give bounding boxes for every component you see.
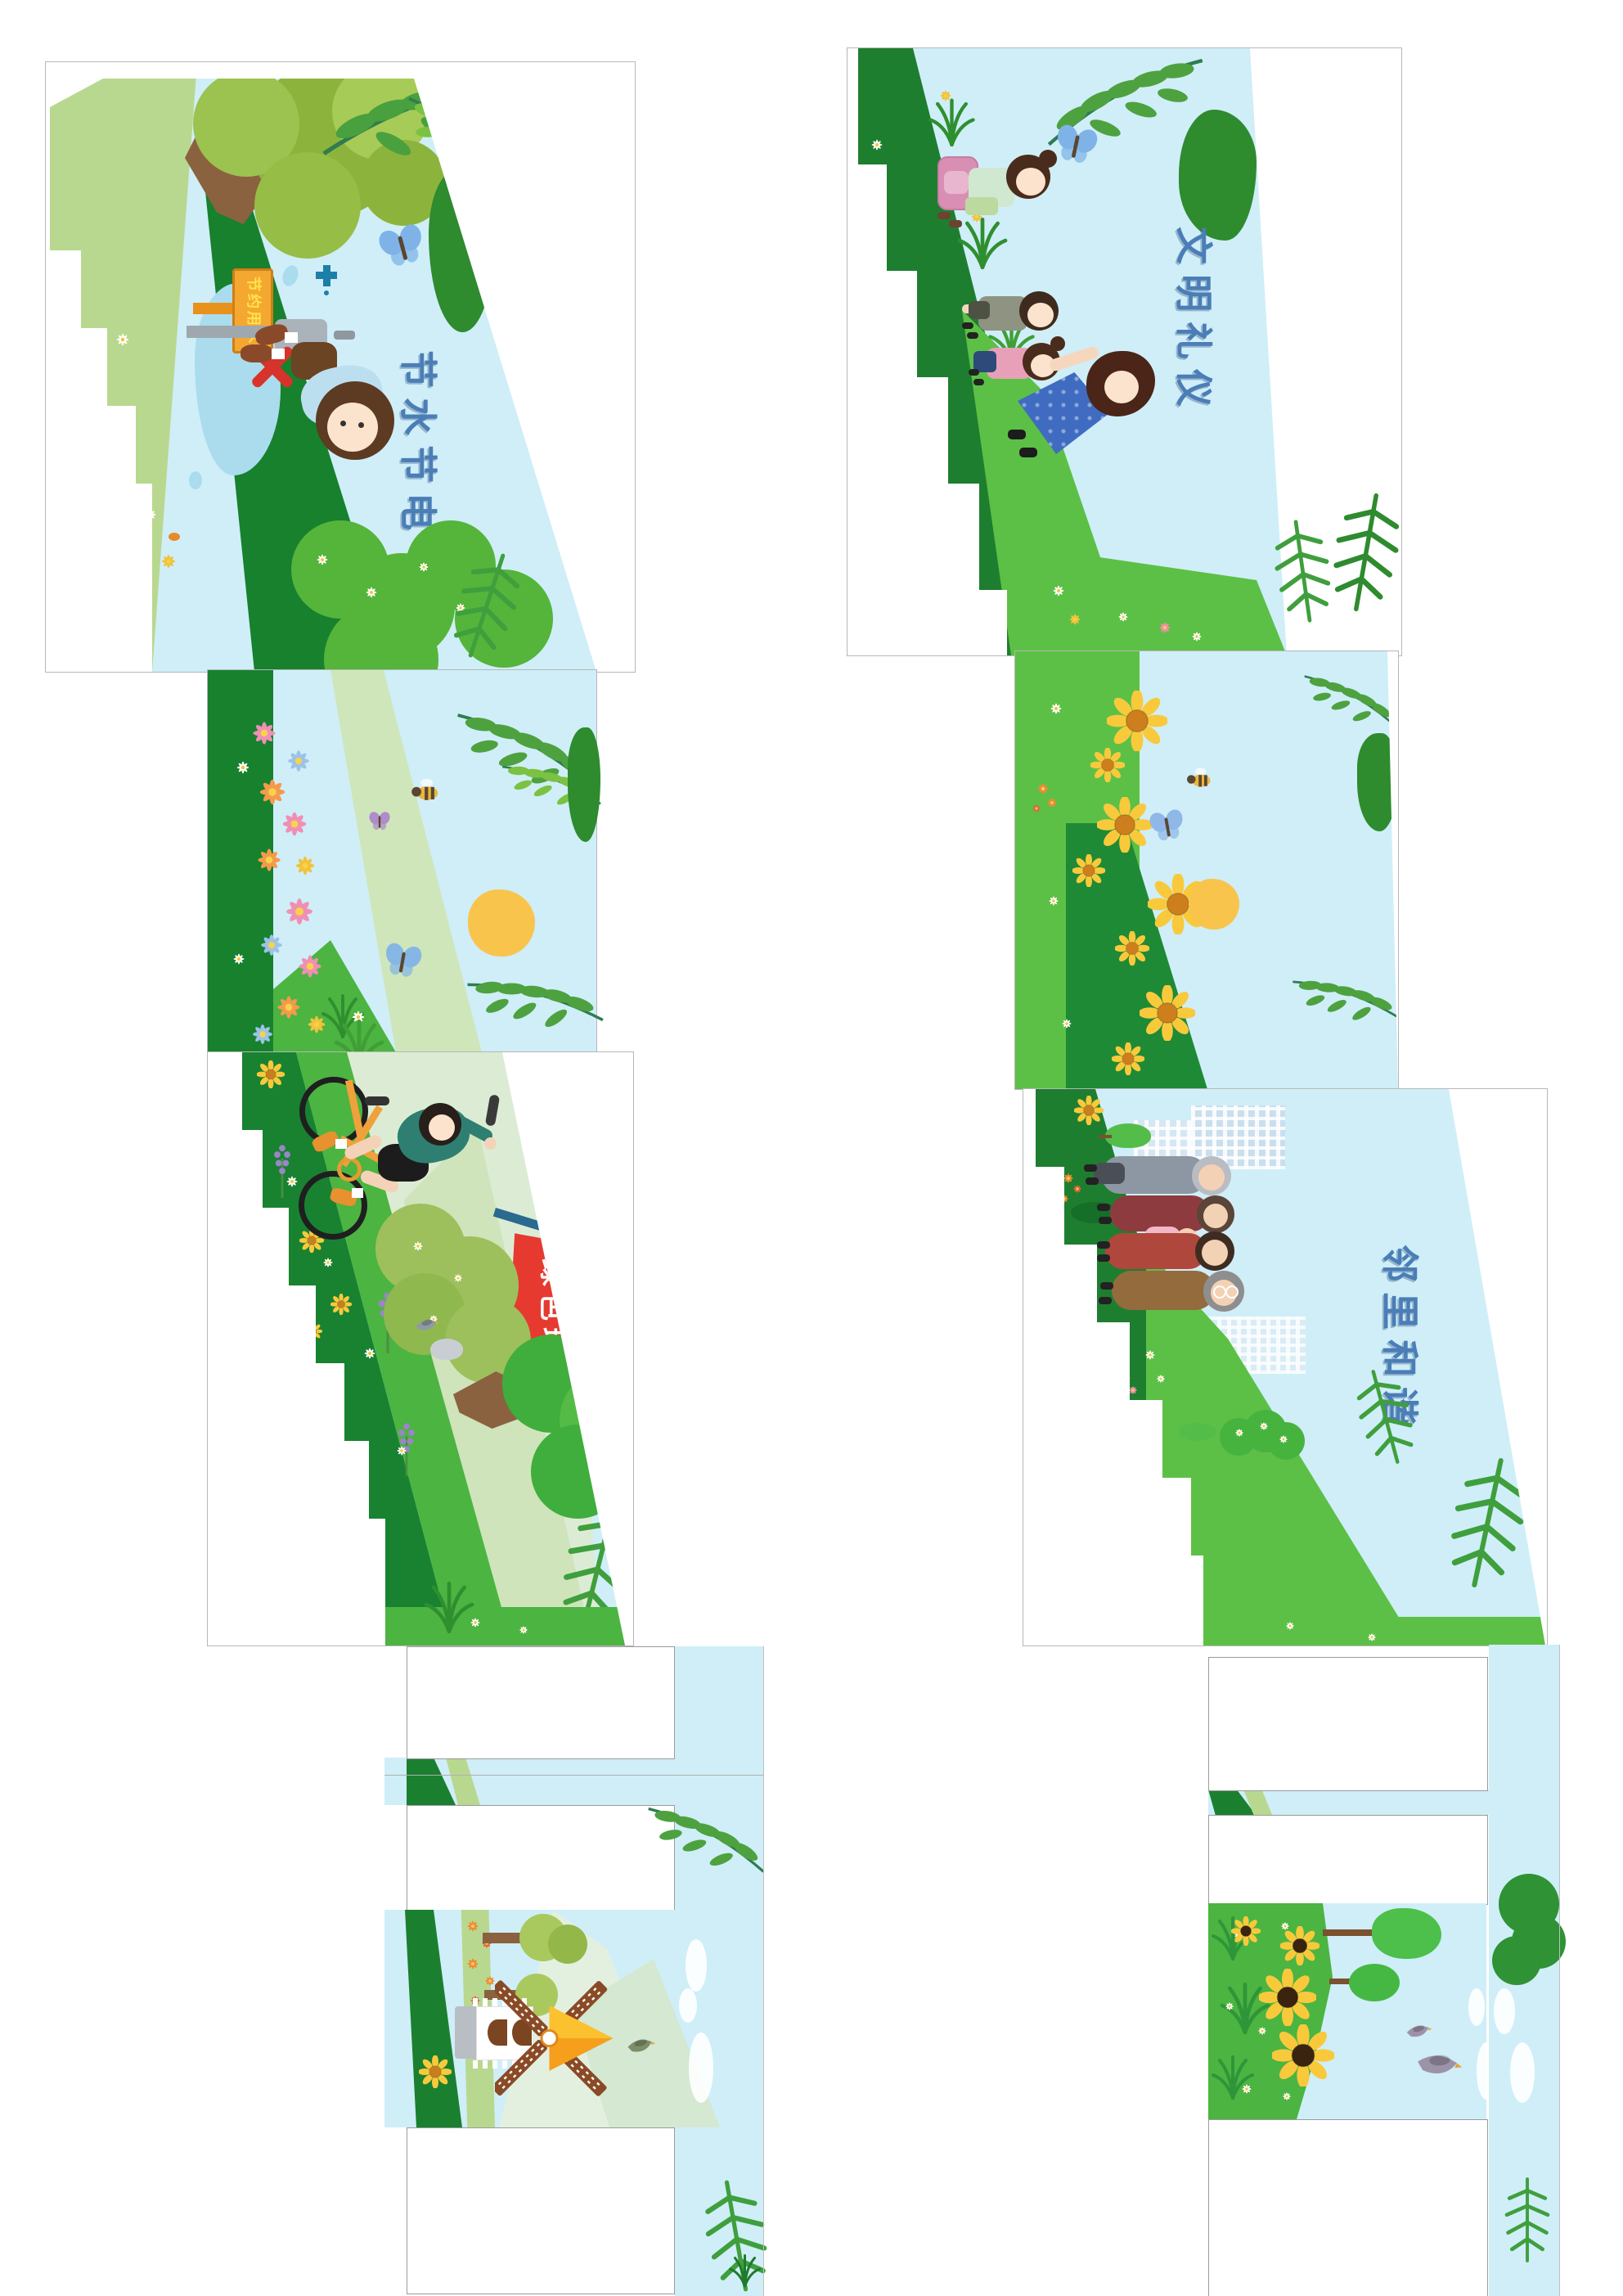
elder-shoe — [1084, 1164, 1097, 1172]
daisy-icon — [1241, 2083, 1252, 2095]
sunflower-icon — [1272, 2024, 1334, 2087]
sunflower-icon — [1107, 691, 1167, 751]
flower-icon — [250, 1022, 275, 1047]
daisy-icon — [365, 586, 378, 599]
flag-pole — [493, 1208, 615, 1253]
flower-icon — [1158, 621, 1171, 634]
girl-shoe — [973, 379, 984, 385]
sunflower-icon — [330, 1294, 352, 1315]
tap-glyph-drop — [324, 290, 329, 295]
girl-hair-bun — [1039, 150, 1057, 168]
bird-icon — [412, 1312, 440, 1335]
sunflower-icon — [1140, 985, 1195, 1041]
flower-icon — [484, 1975, 496, 1987]
tree-canopy — [548, 1925, 587, 1964]
cloud-icon — [679, 1988, 697, 2023]
tap-glyph-stem — [323, 265, 330, 286]
bicycle-crank — [337, 1157, 362, 1182]
sunflower-icon — [1259, 1969, 1316, 2026]
sun-icon — [468, 889, 535, 957]
butterfly-icon — [367, 809, 392, 834]
sunflower-icon — [1112, 1042, 1144, 1075]
sunflower-icon — [1097, 797, 1153, 853]
elder-head — [1192, 1156, 1231, 1195]
daisy-icon — [1285, 1621, 1295, 1631]
daisy-icon — [412, 1240, 424, 1252]
panel-green-env-scene: 绿色环保 — [208, 1052, 633, 1645]
daisy-icon — [1259, 1421, 1269, 1431]
daisy-icon — [363, 1347, 376, 1360]
label-box-6 — [1208, 2119, 1488, 2296]
small-tree-trunk — [1099, 1135, 1112, 1138]
sunflower-icon — [257, 1060, 285, 1088]
cloud-icon — [689, 2033, 713, 2103]
flower-icon — [1120, 1372, 1131, 1384]
daisy-icon — [1144, 1349, 1156, 1361]
daisy-icon — [1117, 611, 1129, 623]
flower-icon — [1036, 782, 1050, 795]
daisy-icon — [232, 952, 245, 966]
girl-shorts — [965, 197, 998, 215]
cloud-icon — [1510, 2042, 1535, 2103]
label-box-4 — [1208, 1657, 1488, 1791]
girl-sandal — [949, 220, 962, 227]
daisy-icon — [418, 561, 429, 573]
daisy-icon — [144, 508, 157, 521]
cloud-icon — [1468, 1988, 1485, 2026]
tree-canopy — [1349, 1964, 1400, 2001]
flower-icon — [275, 993, 303, 1021]
elder-head — [1197, 1195, 1234, 1233]
house-roof — [455, 2006, 476, 2059]
panel-harmony: 邻里和谐 — [1023, 1088, 1548, 1646]
grass-tuft-icon — [726, 2242, 763, 2296]
flower-icon — [160, 553, 177, 569]
boy-shoe — [241, 344, 273, 362]
sunflower-icon — [1280, 1926, 1320, 1965]
sunflower-icon — [419, 2055, 452, 2088]
boy-shoe — [967, 332, 978, 339]
daisy-icon — [1257, 2026, 1267, 2036]
panel-sunflowers-scene — [1015, 651, 1398, 1089]
elder-body — [1112, 1271, 1215, 1310]
label-box-3 — [407, 2127, 675, 2294]
flower-icon — [1072, 1184, 1082, 1194]
mother-shoe — [1008, 430, 1026, 439]
girl-sandal — [937, 212, 951, 219]
cyclist-hand — [484, 1137, 497, 1150]
tree-canopy — [1372, 1908, 1441, 1959]
elder-shoe — [1086, 1177, 1099, 1185]
die-line — [763, 1646, 764, 2296]
backpack-pocket — [944, 171, 969, 194]
cyclist-sock — [352, 1188, 363, 1198]
daisy-icon — [115, 332, 130, 347]
flower-icon — [283, 895, 316, 928]
daisy-icon — [1225, 2001, 1234, 2011]
panel-save-water: 节水节电 节约用水 — [45, 61, 636, 673]
glasses — [1225, 1285, 1239, 1299]
tulip-icon — [124, 596, 147, 646]
elder-head — [1195, 1231, 1234, 1271]
flower-icon — [1068, 613, 1081, 626]
tree-canopy — [502, 1335, 600, 1433]
sunflower-icon — [1072, 854, 1105, 887]
sky-strip — [1489, 1645, 1559, 2296]
panel-green-env: 绿色环保 — [207, 1051, 634, 1646]
daisy-icon — [1156, 1374, 1166, 1384]
daisy-icon — [470, 1617, 481, 1628]
flower-icon — [259, 932, 285, 958]
willow-branch-icon — [535, 1134, 625, 1204]
elder-face — [1203, 1204, 1228, 1228]
glasses — [1213, 1285, 1226, 1299]
daisy-icon — [236, 760, 250, 775]
figure-mother — [1008, 349, 1163, 476]
girl-head — [1006, 155, 1050, 199]
flower-icon — [250, 719, 278, 747]
elder-shoe — [1097, 1254, 1110, 1262]
tulip-icon — [105, 615, 128, 666]
flower-icon — [280, 809, 309, 839]
elder-head — [1203, 1271, 1244, 1312]
cyclist-sock — [335, 1139, 347, 1149]
sun-icon — [1189, 879, 1239, 930]
elder-shoe — [1099, 1297, 1112, 1304]
elder-face — [1198, 1164, 1225, 1191]
sunflower-icon — [1074, 1096, 1104, 1125]
flower-icon — [285, 748, 312, 774]
label-box-1 — [407, 1646, 675, 1759]
bicycle-wheel — [299, 1171, 367, 1240]
tap-glyph-icon — [316, 265, 340, 298]
elder-shoe — [1097, 1204, 1110, 1211]
butterfly-icon — [378, 937, 427, 986]
tree-canopy — [254, 152, 361, 259]
bush — [1492, 1936, 1541, 1985]
girl-shoe — [969, 369, 979, 376]
daisy-icon — [870, 138, 883, 151]
flower-icon — [1063, 1173, 1074, 1184]
mother-head — [1093, 356, 1149, 412]
daisy-icon — [1367, 1632, 1377, 1642]
daisy-icon — [917, 433, 928, 444]
sign-post — [193, 303, 236, 314]
boy-sock — [285, 332, 298, 343]
flower-icon — [1046, 797, 1058, 808]
girl-face — [1016, 168, 1045, 196]
sunflower-patch-scene — [1208, 1903, 1486, 2119]
daisy-icon — [316, 553, 329, 566]
boy-eye — [340, 421, 346, 426]
bug-icon — [169, 533, 180, 541]
daisy-icon — [1052, 584, 1065, 597]
cyclist-head — [419, 1103, 461, 1146]
flower-icon — [255, 846, 283, 874]
flower-icon — [294, 854, 317, 877]
panel-meadow — [207, 669, 597, 1053]
label-box-5 — [1208, 1815, 1488, 1905]
bush-with-daisies — [1220, 1410, 1310, 1467]
daisy-icon — [888, 290, 900, 301]
die-line — [1559, 1645, 1560, 2296]
panel-harmony-scene: 邻里和谐 — [1023, 1089, 1547, 1645]
panel-sunflowers — [1014, 651, 1399, 1090]
flower-icon — [939, 89, 952, 102]
daisy-icon — [1048, 895, 1059, 907]
tap-handle — [334, 331, 355, 340]
willow-branch-icon — [1284, 930, 1408, 1069]
cyclist-face — [429, 1114, 455, 1141]
flower-icon — [1032, 804, 1041, 813]
fern-icon — [1495, 2159, 1559, 2281]
die-line — [384, 1775, 763, 1776]
figure-walking-boy — [962, 290, 1064, 344]
boy-shoe — [962, 322, 973, 329]
sunflower-icon — [890, 502, 910, 522]
bicycle-seat — [365, 1096, 389, 1105]
panel-title-civility: 文明礼仪 — [1175, 227, 1212, 439]
lavender-icon — [272, 1126, 293, 1216]
flower-icon — [257, 777, 288, 808]
cloud-icon — [686, 1939, 707, 1992]
mother-shoe — [1019, 448, 1037, 457]
windmill-scene — [384, 1910, 763, 2127]
daisy-icon — [1282, 2091, 1292, 2101]
bee-icon — [1184, 766, 1215, 790]
boy-face — [1027, 303, 1054, 327]
elder-shoe — [1097, 1241, 1110, 1249]
butterfly-icon — [1144, 804, 1190, 849]
figure-elderly-group — [1097, 1156, 1277, 1328]
mother-face — [1104, 371, 1139, 403]
boy-face — [327, 403, 378, 452]
elder-shoe — [1099, 1217, 1112, 1224]
daisy-icon — [1061, 1018, 1072, 1029]
tulip-icon — [83, 592, 107, 646]
sunflower-icon — [1090, 748, 1125, 782]
oak-leaf-icon — [1357, 733, 1398, 831]
boy-head — [316, 381, 394, 460]
flower-icon — [466, 1920, 479, 1933]
daisy-icon — [285, 1175, 299, 1188]
elder-body — [1105, 1233, 1207, 1269]
panel-save-water-scene: 节水节电 节约用水 — [46, 62, 635, 672]
bee-icon — [408, 777, 443, 804]
daisy-icon — [1279, 1434, 1288, 1444]
flower-icon — [466, 1957, 479, 1970]
sunflower-icon — [1115, 931, 1149, 966]
label-box-2 — [407, 1805, 675, 1911]
sticker-sheet: 节水节电 节约用水 — [0, 0, 1623, 2296]
small-tree — [1105, 1123, 1151, 1148]
daisy-icon — [1050, 702, 1063, 715]
sunflower-icon — [304, 1322, 322, 1340]
oak-leaf-icon — [568, 727, 600, 842]
cloud-icon — [1494, 1988, 1515, 2034]
boy-pants — [969, 301, 990, 319]
flower-icon — [296, 952, 324, 980]
daisy-icon — [1234, 1428, 1244, 1438]
flower-icon — [1059, 1194, 1069, 1204]
boy-eye — [358, 422, 364, 428]
elder-face — [1202, 1240, 1228, 1266]
daisy-icon — [322, 1257, 334, 1268]
sunflower-icon — [1231, 1916, 1261, 1946]
daisy-icon — [396, 1445, 407, 1456]
small-tree — [1179, 1423, 1216, 1441]
daisy-icon — [1191, 631, 1203, 642]
boy-sock — [272, 349, 285, 359]
water-drop — [189, 471, 202, 489]
willow-branch-icon — [645, 1790, 767, 1889]
rabbit-icon — [430, 1339, 463, 1360]
oak-leaf-icon — [1179, 110, 1257, 241]
boy-head — [1019, 291, 1059, 331]
daisy-icon — [519, 1625, 528, 1635]
bird-icon — [623, 2031, 656, 2058]
figure-girl-backpack — [937, 146, 1056, 232]
elder-shoe — [1100, 1282, 1113, 1290]
flower-icon — [1128, 1385, 1138, 1395]
panel-meadow-scene — [208, 670, 596, 1052]
daisy-icon — [453, 1273, 463, 1283]
